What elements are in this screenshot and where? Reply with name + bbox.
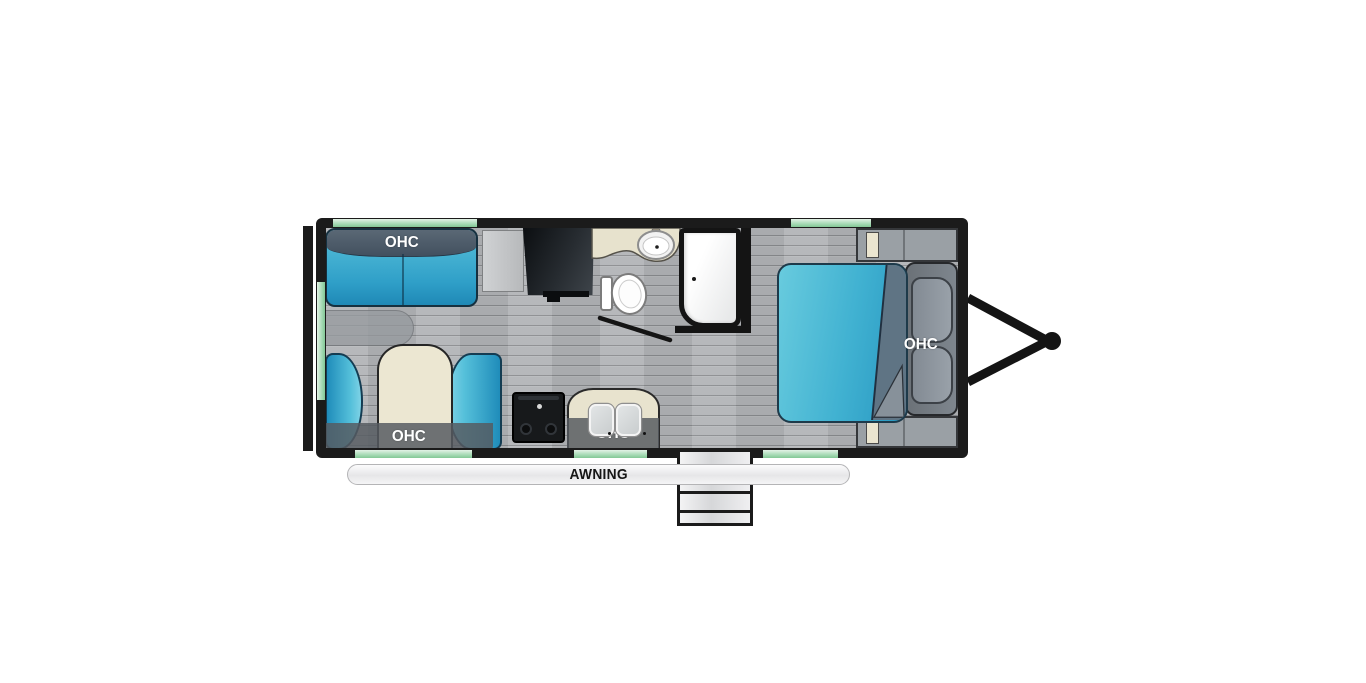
hitch-bar-top	[968, 298, 1046, 340]
window-bottom-left	[355, 450, 472, 458]
queen-bed-mattress	[777, 263, 908, 423]
bathroom-bedroom-wall	[741, 228, 751, 330]
window-rear	[317, 282, 325, 400]
rear-bumper	[303, 226, 313, 451]
window-top-right	[791, 219, 871, 227]
step-tread	[680, 510, 750, 513]
awning-label: AWNING	[569, 466, 627, 483]
kitchen-sink-right	[616, 404, 641, 436]
window-bottom-center	[574, 450, 647, 458]
floorplan-canvas: OHC OHC OHC	[0, 0, 1366, 683]
awning-rail: AWNING	[347, 464, 850, 485]
faucet-dot	[643, 432, 646, 435]
dinette-overhead-cabinet: OHC	[325, 423, 493, 450]
bed-ohc-label: OHC	[904, 337, 938, 353]
hitch-bar-bottom	[968, 342, 1046, 382]
sink-drain	[655, 245, 659, 249]
shower-drain	[692, 277, 696, 281]
dinette-ohc-label: OHC	[392, 429, 426, 445]
bed-overhead-cabinet-label-wrap: OHC	[891, 337, 951, 353]
entry-steps	[677, 449, 753, 526]
bedding-fold	[779, 265, 906, 420]
pillow	[911, 277, 953, 343]
window-bottom-right	[763, 450, 838, 458]
trailer-floorplan: OHC OHC OHC	[316, 218, 968, 458]
toilet-tank	[601, 277, 612, 310]
window-top-left	[333, 219, 477, 227]
kitchen-sink-left	[589, 404, 614, 436]
faucet-dot	[608, 432, 611, 435]
hitch-coupler-ball	[1043, 332, 1061, 350]
pillow	[911, 346, 953, 404]
shower	[679, 228, 741, 328]
step-tread	[680, 491, 750, 494]
hitch-a-frame	[966, 288, 1070, 394]
bathroom-door-swing	[600, 318, 670, 340]
bathroom-wall-stub	[675, 326, 751, 333]
